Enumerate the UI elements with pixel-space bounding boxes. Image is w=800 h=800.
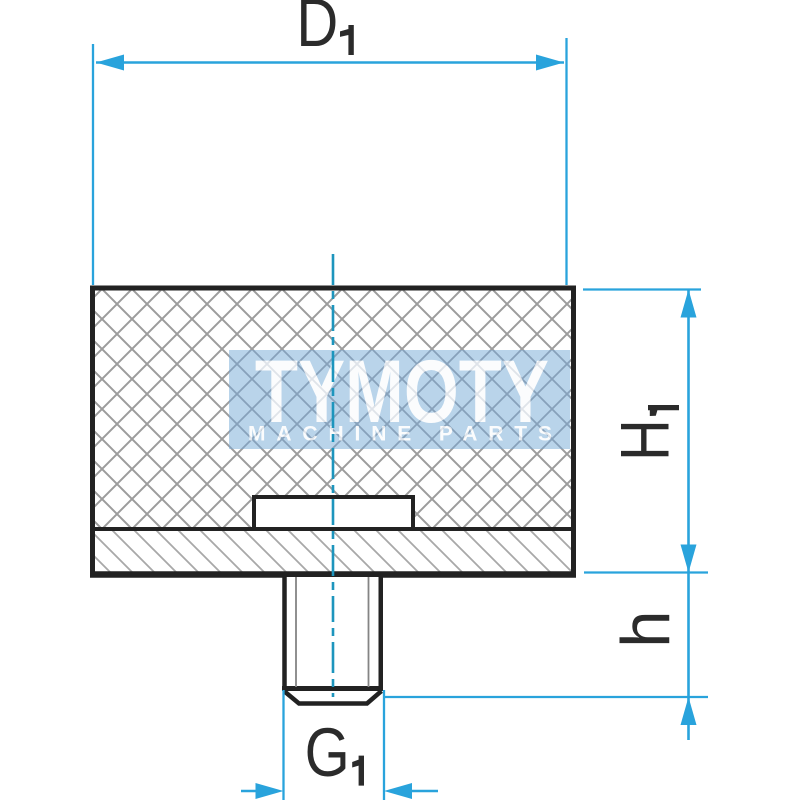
svg-text:h: h: [608, 610, 685, 647]
svg-text:G: G: [305, 713, 350, 791]
svg-text:D: D: [296, 0, 338, 61]
svg-text:H: H: [606, 419, 684, 461]
